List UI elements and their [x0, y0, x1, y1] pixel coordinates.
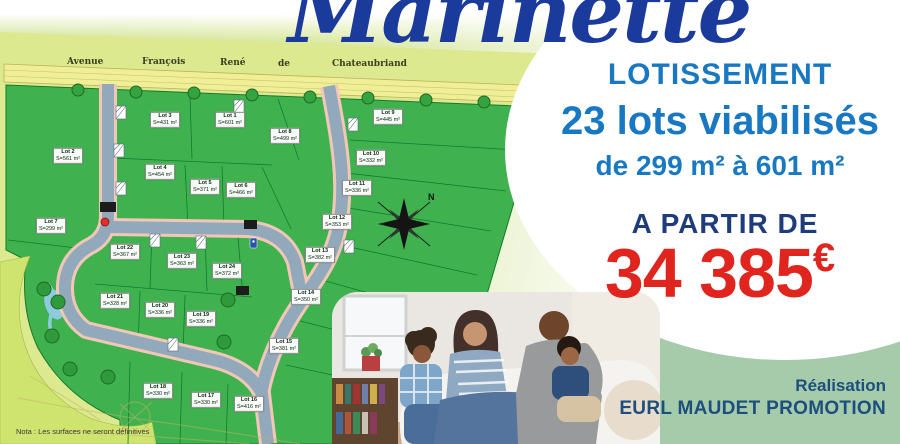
- lot-label: Lot 14S=350 m²: [291, 289, 321, 305]
- lot-label: Lot 15S=381 m²: [269, 338, 299, 354]
- price-line: 34 385€: [505, 238, 900, 308]
- lot-label: Lot 7S=299 m²: [36, 218, 66, 234]
- info-sign: [250, 238, 257, 248]
- lots-count-line: 23 lots viabilisés: [505, 101, 900, 141]
- lot-label: Lot 10S=332 m²: [356, 150, 386, 166]
- lot-label: Lot 20S=336 m²: [145, 302, 175, 318]
- lot-label: Lot 24S=372 m²: [212, 263, 242, 279]
- lot-label: Lot 23S=363 m²: [167, 253, 197, 269]
- lot-label: Lot 3S=431 m²: [150, 112, 180, 128]
- lot-label: Lot 17S=330 m²: [191, 392, 221, 408]
- family-photo: [332, 292, 660, 444]
- lot-label: Lot 8S=499 m²: [270, 128, 300, 144]
- development-title: Marinette: [288, 0, 750, 56]
- lot-label: Lot 13S=382 m²: [305, 247, 335, 263]
- bookshelf: [332, 378, 398, 444]
- lot-label: Lot 11S=336 m²: [342, 180, 372, 196]
- euro-sign: €: [813, 236, 835, 280]
- lot-label: Lot 22S=367 m²: [110, 244, 140, 260]
- flyer-page: { "title": "Marinette", "promo": { "loti…: [0, 0, 900, 444]
- street-word: René: [220, 59, 245, 68]
- lotissement-heading: LOTISSEMENT: [535, 60, 900, 90]
- lot-label: Lot 12S=353 m²: [322, 214, 352, 230]
- lot-label: Lot 9S=445 m²: [373, 109, 403, 125]
- realisation-label: Réalisation: [795, 377, 886, 394]
- street-word: Avenue: [67, 58, 103, 67]
- lot-label: Lot 19S=336 m²: [186, 311, 216, 327]
- surfaces-note: Nota : Les surfaces ne seront définitive…: [16, 427, 149, 436]
- lot-label: Lot 16S=416 m²: [234, 396, 264, 412]
- price-value: 34 385: [605, 234, 813, 312]
- lot-label: Lot 4S=454 m²: [145, 164, 175, 180]
- lot-label: Lot 21S=328 m²: [100, 293, 130, 309]
- lot-label: Lot 18S=330 m²: [143, 383, 173, 399]
- company-name: EURL MAUDET PROMOTION: [619, 399, 886, 418]
- street-word: François: [142, 58, 185, 67]
- lot-label: Lot 2S=561 m²: [53, 148, 83, 164]
- lot-label: Lot 5S=371 m²: [190, 179, 220, 195]
- lot-label: Lot 1S=601 m²: [215, 112, 245, 128]
- compass-n-label: N: [428, 192, 435, 202]
- lot-label: Lot 6S=466 m²: [226, 182, 256, 198]
- surface-range-line: de 299 m² à 601 m²: [535, 152, 900, 180]
- hydrant-marker: [101, 218, 109, 226]
